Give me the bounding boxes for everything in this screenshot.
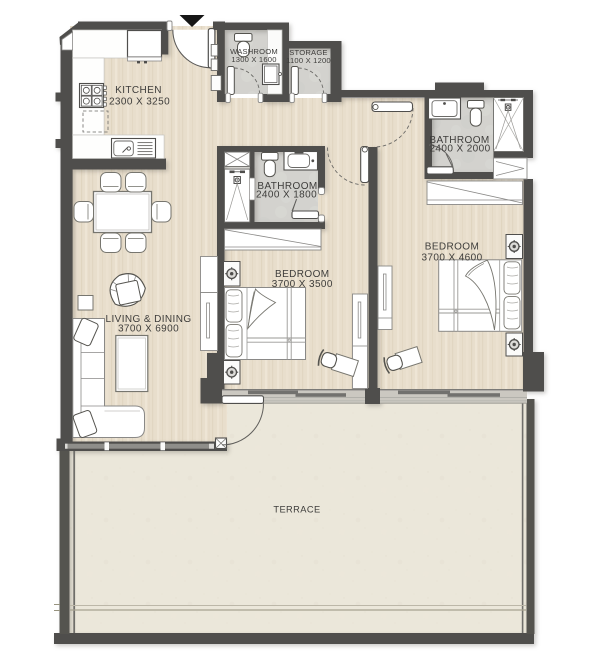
svg-text:2300 X 3250: 2300 X 3250 [109, 97, 170, 108]
svg-text:1300 X 1600: 1300 X 1600 [231, 55, 276, 64]
svg-text:3700 X 3500: 3700 X 3500 [272, 279, 333, 290]
svg-text:3700 X 6900: 3700 X 6900 [118, 324, 179, 335]
svg-text:BEDROOM: BEDROOM [425, 242, 479, 253]
svg-text:3700 X 4600: 3700 X 4600 [421, 253, 482, 264]
svg-text:1100 X 1200: 1100 X 1200 [286, 56, 331, 65]
svg-text:2400 X 2000: 2400 X 2000 [429, 144, 490, 155]
svg-text:KITCHEN: KITCHEN [115, 85, 162, 96]
svg-text:TERRACE: TERRACE [273, 505, 320, 515]
svg-text:2400 X 1800: 2400 X 1800 [256, 190, 317, 201]
